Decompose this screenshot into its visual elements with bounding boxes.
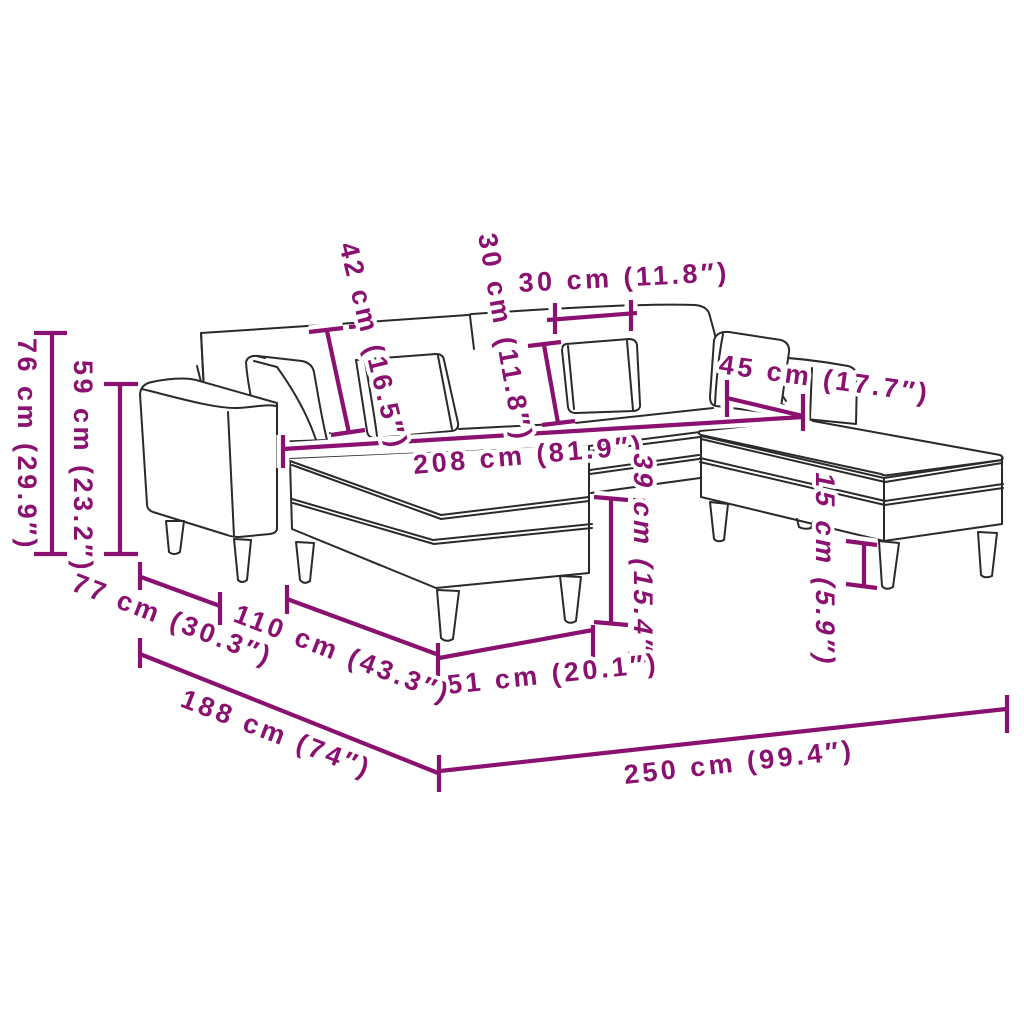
svg-text:59 cm (23.2″): 59 cm (23.2″) <box>68 360 98 573</box>
svg-text:39 cm (15.4″): 39 cm (15.4″) <box>628 451 659 671</box>
svg-text:76 cm (29.9″): 76 cm (29.9″) <box>12 338 42 551</box>
svg-text:15 cm (5.9″): 15 cm (5.9″) <box>810 470 841 671</box>
